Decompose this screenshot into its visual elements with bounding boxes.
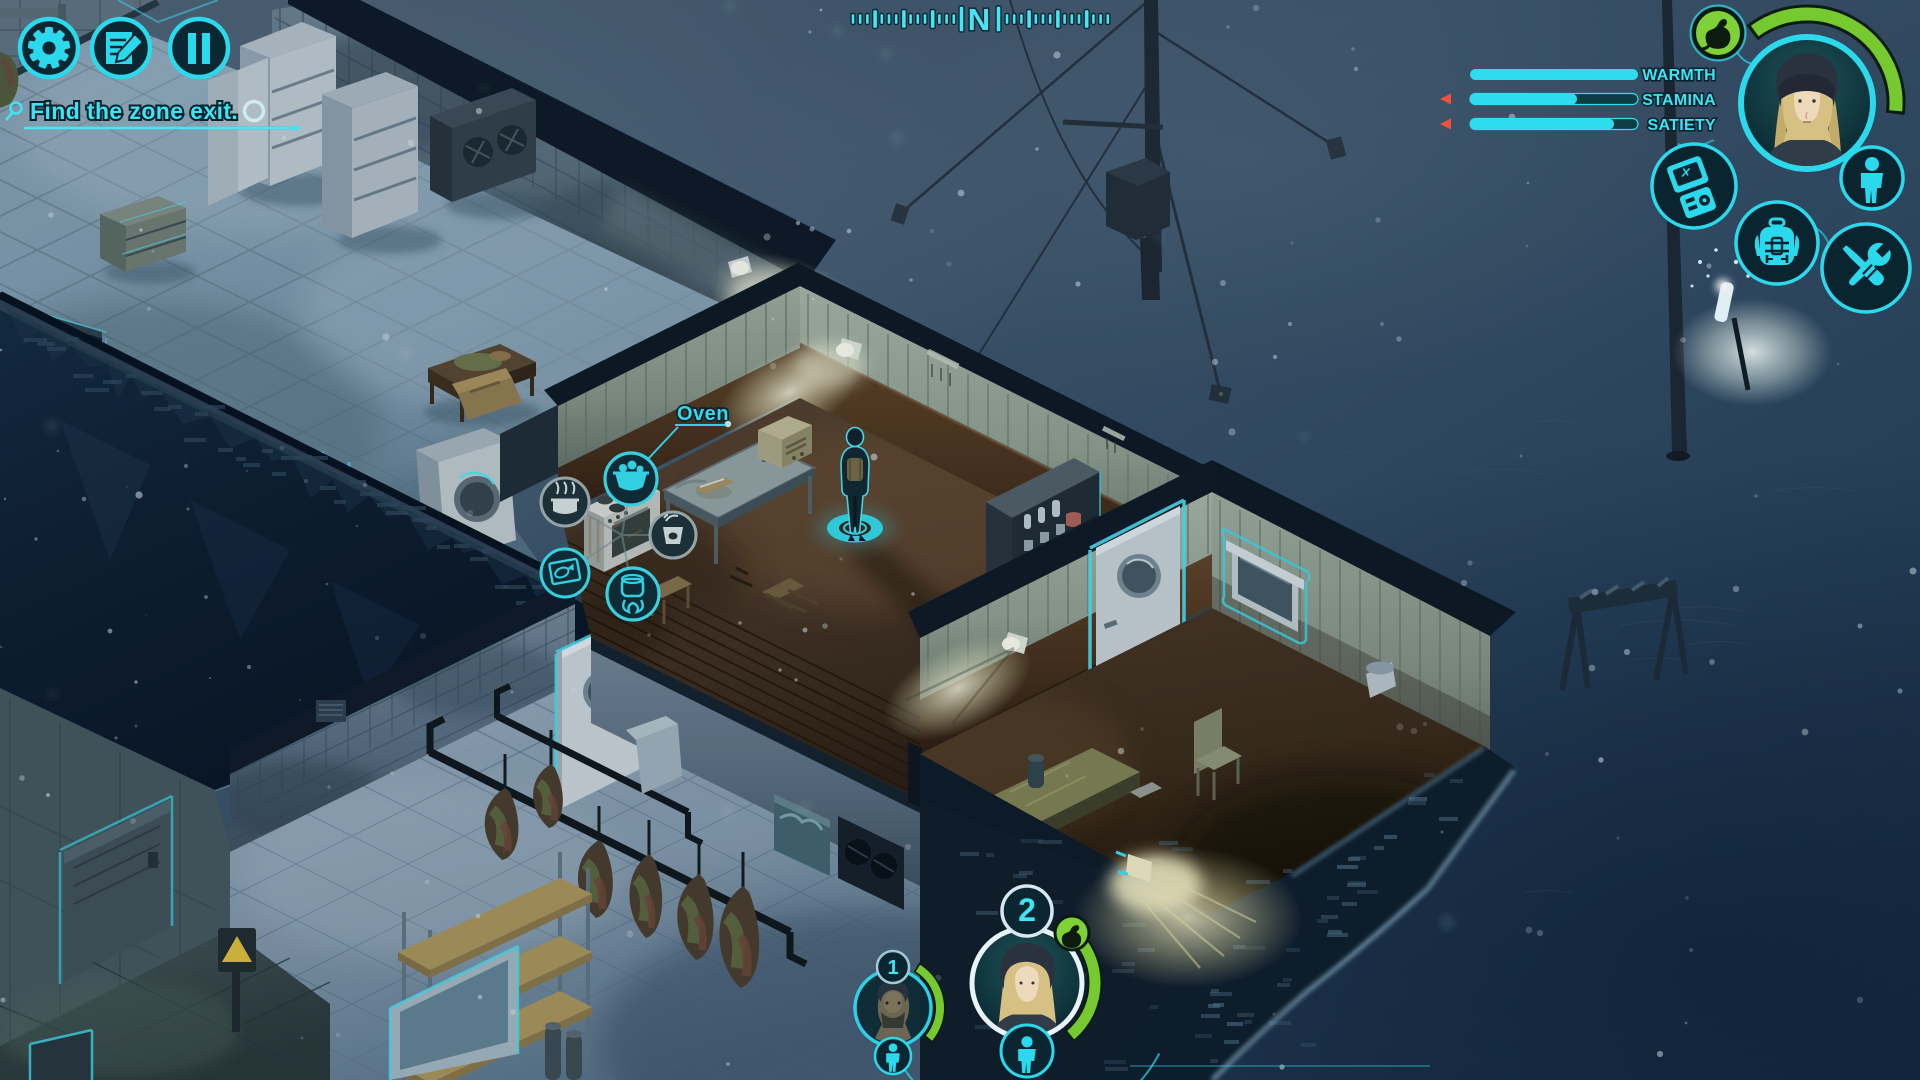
svg-text:SATIETY: SATIETY [1648,117,1717,134]
svg-text:WARMTH: WARMTH [1642,67,1716,84]
svg-text:N: N [968,2,990,37]
svg-text:STAMINA: STAMINA [1642,92,1716,109]
svg-text:2: 2 [1018,892,1036,928]
svg-text:Find the zone exit.: Find the zone exit. [30,98,238,124]
svg-text:1: 1 [887,957,898,979]
